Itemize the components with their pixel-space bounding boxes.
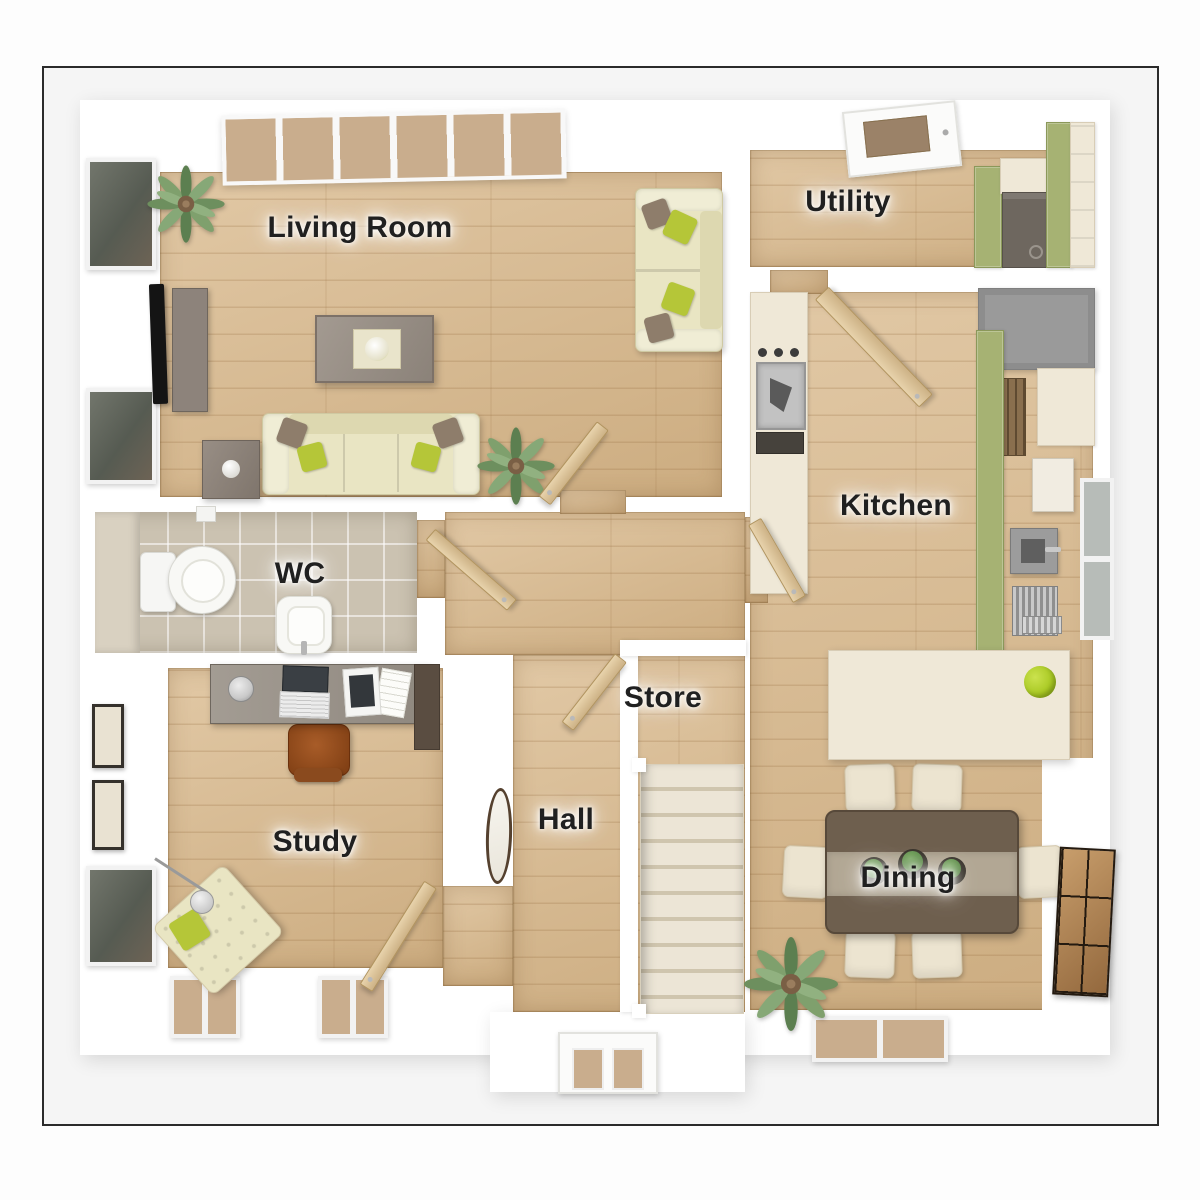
side-table-ornament — [222, 460, 240, 478]
dining-chair-top-2 — [911, 763, 963, 813]
study-desk-return — [414, 664, 440, 750]
utility-shelf-unit — [1070, 122, 1095, 268]
coffee-machine-front — [1021, 539, 1045, 563]
doorway-study-hall — [443, 886, 513, 986]
utility-door-handle — [942, 129, 949, 136]
sofa2-back — [700, 211, 722, 329]
utility-counter — [1000, 158, 1048, 194]
sofa-main — [262, 413, 480, 495]
staircase — [640, 764, 744, 1014]
study-window-bottom-2 — [318, 976, 388, 1038]
utility-cabinet-1 — [974, 166, 1002, 268]
room-label-hall: Hall — [538, 803, 594, 837]
utility-door-pane — [863, 115, 930, 157]
sofa-back — [289, 414, 453, 434]
laptop — [279, 665, 329, 717]
side-table — [202, 440, 260, 499]
dining-chair-top-1 — [844, 763, 896, 813]
floor-lamp-shade — [190, 890, 214, 914]
laptop-screen — [282, 665, 329, 693]
kitchen-cabinet-cream — [1037, 368, 1095, 446]
sofa-secondary — [635, 188, 723, 352]
room-label-store: Store — [624, 681, 702, 715]
tv-stand — [172, 288, 208, 412]
room-label-living-room: Living Room — [268, 211, 453, 245]
living-room-plant-1 — [140, 158, 232, 250]
wc-sink — [276, 596, 332, 654]
room-label-utility: Utility — [805, 185, 890, 219]
stair-newel-bottom — [632, 1004, 646, 1018]
office-chair-back — [294, 768, 342, 782]
dining-wall-art-tiles — [1052, 847, 1116, 998]
kitchen-window-right — [1080, 478, 1114, 640]
chaise-pillow-green — [168, 908, 212, 952]
laptop-keyboard — [279, 691, 330, 719]
coffee-machine — [1010, 528, 1058, 574]
wall-picture-2 — [92, 780, 124, 850]
coffee-table-tray — [353, 329, 401, 369]
hob-knob-2 — [774, 348, 783, 357]
tablet — [342, 667, 381, 717]
coffee-machine-handle — [1045, 547, 1061, 552]
floor-plan: Living Room Utility Kitchen WC Store Hal… — [0, 0, 1200, 1200]
toilet-bowl — [168, 546, 236, 614]
wc-side-panel — [95, 512, 140, 653]
front-door-pane-left — [572, 1048, 604, 1090]
wc-sink-basin — [287, 606, 325, 646]
front-door-pane-right — [612, 1048, 644, 1090]
cooktop-pan — [770, 378, 792, 412]
room-label-kitchen: Kitchen — [840, 489, 952, 523]
kitchen-appliance-box — [1032, 458, 1074, 512]
washing-machine — [1002, 192, 1048, 268]
dining-chair-left — [782, 845, 831, 899]
toilet-seat — [181, 559, 225, 603]
doorway-living-hall — [560, 490, 626, 514]
utility-back-door — [842, 100, 962, 178]
living-room-window-left-2 — [86, 388, 156, 484]
coffee-table-bowl — [365, 337, 389, 361]
fruit-bowl-apples — [1024, 666, 1056, 698]
stair-newel-top — [632, 758, 646, 772]
utility-cabinet-2 — [1046, 122, 1072, 268]
room-label-wc: WC — [275, 557, 326, 591]
kitchen-cabinet-run — [976, 330, 1004, 652]
radiator-horizontal — [1022, 616, 1062, 634]
coffee-table — [315, 315, 434, 383]
wc-faucet — [301, 641, 307, 655]
living-room-bifold-windows — [221, 108, 566, 185]
room-label-study: Study — [273, 825, 358, 859]
cooktop — [756, 362, 806, 430]
oven — [756, 432, 804, 454]
doorway-utility-kitchen — [770, 270, 828, 294]
wall-picture-1 — [92, 704, 124, 768]
dining-chair-bottom-1 — [844, 929, 896, 979]
tablet-screen — [349, 674, 375, 708]
front-door — [558, 1032, 658, 1094]
hob-knob-1 — [758, 348, 767, 357]
toilet-roll-holder — [196, 506, 216, 522]
washing-machine-door — [1029, 245, 1043, 259]
study-window-left — [86, 866, 156, 966]
room-label-dining: Dining — [860, 861, 955, 895]
dining-plant-palm — [735, 928, 847, 1040]
dining-chair-bottom-2 — [911, 929, 963, 979]
desk-clock — [228, 676, 254, 702]
store-wall-top — [620, 640, 746, 656]
hob-knob-3 — [790, 348, 799, 357]
